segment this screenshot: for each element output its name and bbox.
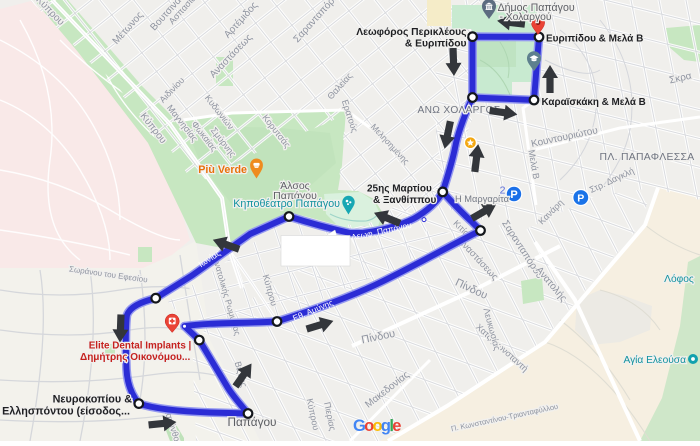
svg-text:25ης Μαρτίου: 25ης Μαρτίου xyxy=(367,184,432,195)
svg-text:Κηποθέατρο Παπάγου: Κηποθέατρο Παπάγου xyxy=(233,198,340,210)
svg-text:ΑΝΩ ΧΟΛΑΡΓΟΣ: ΑΝΩ ΧΟΛΑΡΓΟΣ xyxy=(418,105,501,116)
svg-text:Δημήτρης Οικονόμου...: Δημήτρης Οικονόμου... xyxy=(80,352,190,363)
svg-text:Λόφος: Λόφος xyxy=(664,273,694,285)
svg-text:Ευριπίδου & Μελά Β: Ευριπίδου & Μελά Β xyxy=(546,34,643,45)
svg-text:Καραϊσκάκη & Μελά Β: Καραϊσκάκη & Μελά Β xyxy=(542,97,646,108)
svg-text:& Ευριπίδου: & Ευριπίδου xyxy=(405,39,467,50)
svg-text:Νευροκοπίου &: Νευροκοπίου & xyxy=(53,394,133,406)
svg-text:Google: Google xyxy=(353,417,401,435)
svg-text:Αγία Ελεούσα: Αγία Ελεούσα xyxy=(623,354,686,366)
svg-text:P: P xyxy=(510,189,517,201)
svg-text:Più Verde: Più Verde xyxy=(198,164,247,176)
svg-text:& Ξανθίππου: & Ξανθίππου xyxy=(373,195,436,206)
svg-text:Η Μαργαρίτα: Η Μαργαρίτα xyxy=(455,194,510,204)
svg-text:P: P xyxy=(577,192,584,204)
svg-text:Elite Dental Implants |: Elite Dental Implants | xyxy=(89,341,192,352)
svg-text:Λεωφόρος Περικλέους: Λεωφόρος Περικλέους xyxy=(356,27,466,38)
svg-text:ΠΛ. ΠΑΠΑΦΛΕΣΣΑ: ΠΛ. ΠΑΠΑΦΛΕΣΣΑ xyxy=(600,152,695,163)
svg-text:Ελλησπόντου (είσοδος...: Ελλησπόντου (είσοδος... xyxy=(2,406,130,418)
svg-text:- Χολαργού: - Χολαργού xyxy=(500,11,552,23)
